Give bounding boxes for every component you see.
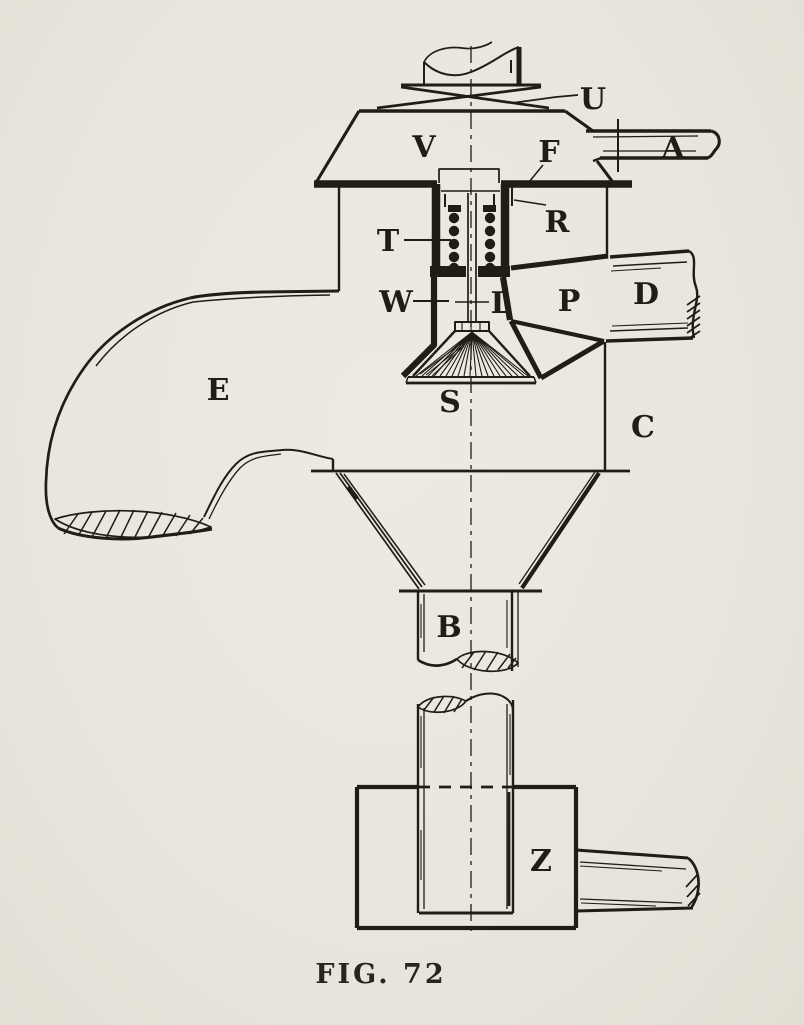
label-r: R	[545, 205, 571, 240]
figure-caption: FIG. 72	[315, 959, 446, 990]
label-f: F	[538, 135, 559, 170]
label-w: W	[378, 285, 414, 320]
label-z: Z	[530, 844, 552, 879]
body-flange-f	[314, 169, 632, 184]
spring-housing-t	[430, 184, 512, 277]
label-u: U	[580, 82, 606, 117]
pipe-a	[586, 119, 719, 172]
lower-pipe	[418, 694, 513, 913]
label-v: V	[411, 130, 436, 165]
book-page: U V F A T R W L P D E S C B Z FIG. 72	[0, 0, 804, 1025]
top-intake-pipe	[401, 42, 541, 85]
label-b: B	[436, 610, 461, 645]
pipe-z-outlet	[576, 850, 700, 911]
label-a: A	[660, 131, 685, 166]
pipe-b	[418, 591, 518, 671]
label-c: C	[631, 410, 655, 445]
label-p: P	[558, 284, 581, 319]
label-s: S	[439, 385, 461, 420]
elbow-pipe-e	[46, 291, 339, 539]
spring-coils	[449, 213, 495, 273]
label-t: T	[377, 224, 400, 259]
valve-cross-u	[359, 87, 565, 111]
hood-v	[317, 111, 612, 181]
label-e: E	[207, 373, 230, 408]
label-d: D	[633, 277, 659, 312]
label-l: L	[490, 286, 511, 321]
funnel	[336, 472, 599, 591]
figure-72-diagram: U V F A T R W L P D E S C B Z FIG. 72	[0, 0, 804, 1025]
